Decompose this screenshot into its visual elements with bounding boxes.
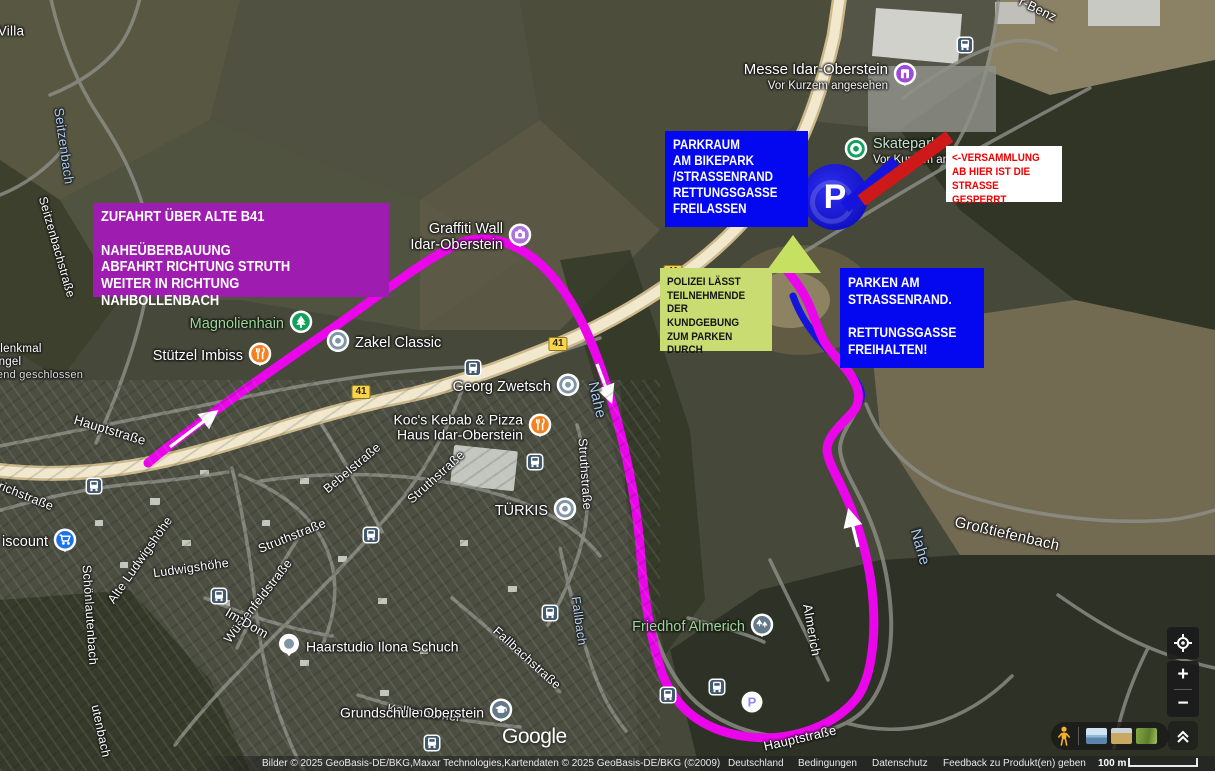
poi-icon-cemetery[interactable]: [749, 612, 776, 640]
transit-stop-icon[interactable]: [465, 360, 482, 377]
transit-stop-icon[interactable]: [542, 605, 559, 622]
poi-icon-donut[interactable]: [325, 328, 352, 356]
pegman-icon[interactable]: [1057, 726, 1071, 746]
poi-label[interactable]: Koc's Kebab & Pizza Haus Idar-Oberstein: [393, 413, 523, 444]
poi-icon-food[interactable]: [247, 341, 274, 369]
poi-icon-building[interactable]: [892, 61, 919, 89]
my-location-icon: [1173, 633, 1193, 653]
poi-icon-tree[interactable]: [288, 309, 315, 337]
assembly-closure-text: <-VERSAMMLUNG AB HIER IST DIE STRASSE GE…: [952, 151, 1046, 207]
route-info-text: ZUFAHRT ÜBER ALTE B41 NAHEÜBERBAUUNG ABF…: [101, 209, 342, 310]
chevron-up-icon: [1174, 727, 1192, 745]
poi-label[interactable]: Messe Idar-ObersteinVor Kurzem angesehen: [744, 62, 888, 92]
poi-sublabel: Vor Kurzem angesehen: [744, 79, 888, 92]
police-info-text: POLIZEI LÄSST TEILNEHMENDE DER KUNDGEBUN…: [667, 276, 755, 358]
roadside-parking-text: PARKEN AM STRASSENRAND. RETTUNGSGASSE FR…: [848, 274, 958, 358]
poi-icon-cart[interactable]: [52, 527, 79, 555]
my-location-button[interactable]: [1167, 627, 1199, 659]
layer-thumbnail-field[interactable]: [1111, 728, 1132, 744]
transit-stop-icon[interactable]: [424, 735, 441, 752]
poi-icon-camera[interactable]: [507, 222, 534, 250]
poi-label[interactable]: Friedhof Almerich: [632, 620, 745, 636]
collapse-chevrons-button[interactable]: [1168, 721, 1198, 750]
bikepark-parking-text: PARKRAUM AM BIKEPARK /STRASSENRAND RETTU…: [673, 137, 782, 217]
route-info-box[interactable]: ZUFAHRT ÜBER ALTE B41 NAHEÜBERBAUUNG ABF…: [93, 203, 389, 297]
zoom-in-button[interactable]: +: [1167, 661, 1199, 689]
scale-bar: [1128, 758, 1198, 767]
route-shield: 41: [548, 337, 567, 351]
assembly-closure-box[interactable]: <-VERSAMMLUNG AB HIER IST DIE STRASSE GE…: [946, 146, 1062, 202]
poi-icon-donut[interactable]: [555, 372, 582, 400]
roadside-parking-box[interactable]: PARKEN AM STRASSENRAND. RETTUNGSGASSE FR…: [840, 268, 984, 368]
divider: [1078, 727, 1079, 745]
link-privacy[interactable]: Datenschutz: [872, 758, 928, 769]
transit-stop-icon[interactable]: [957, 37, 974, 54]
transit-stop-icon[interactable]: [660, 687, 677, 704]
poi-icon-dotrev[interactable]: [276, 631, 303, 659]
poi-label[interactable]: Georg Zwetsch: [453, 380, 551, 396]
bikepark-parking-box[interactable]: PARKRAUM AM BIKEPARK /STRASSENRAND RETTU…: [665, 131, 808, 227]
map-attribution: Bilder © 2025 GeoBasis-DE/BKG,Maxar Tech…: [262, 758, 720, 769]
transit-stop-icon[interactable]: [86, 478, 103, 495]
transit-stop-icon[interactable]: [211, 588, 228, 605]
police-info-box[interactable]: POLIZEI LÄSST TEILNEHMENDE DER KUNDGEBUN…: [660, 268, 772, 351]
poi-label[interactable]: Grundschule Oberstein: [340, 705, 484, 720]
poi-label[interactable]: Stützel Imbiss: [153, 349, 243, 365]
zoom-control: + −: [1167, 661, 1199, 717]
route-shield: 41: [351, 385, 370, 399]
poi-label[interactable]: iscount: [2, 535, 48, 551]
link-terms[interactable]: Bedingungen: [798, 758, 857, 769]
link-country[interactable]: Deutschland: [728, 758, 784, 769]
attribution-bar: Bilder © 2025 GeoBasis-DE/BKG,Maxar Tech…: [0, 756, 1215, 771]
layer-thumbnail-sea[interactable]: [1086, 728, 1107, 744]
poi-label[interactable]: Graffiti Wall Idar-Oberstein: [410, 222, 503, 254]
transit-stop-icon[interactable]: [709, 679, 726, 696]
link-feedback[interactable]: Feedback zu Produkt(en) geben: [943, 758, 1086, 769]
poi-label[interactable]: Zakel Classic: [355, 336, 441, 352]
scale-label: 100 m: [1098, 758, 1126, 769]
poi-layer: Messe Idar-ObersteinVor Kurzem angesehen…: [0, 0, 1215, 771]
poi-label[interactable]: Magnolienhain: [190, 317, 284, 333]
poi-icon-donut[interactable]: [843, 136, 870, 164]
zoom-out-button[interactable]: −: [1167, 690, 1199, 718]
poi-icon-school[interactable]: [488, 697, 515, 725]
poi-label[interactable]: TÜRKIS: [495, 504, 548, 520]
poi-icon-donut[interactable]: [552, 496, 579, 524]
streetview-layer-bar: [1051, 722, 1169, 750]
google-logo[interactable]: Google: [502, 725, 567, 749]
poi-icon-food[interactable]: [527, 412, 554, 440]
map-canvas[interactable]: Villalenkmalngelend geschlossenSeitzenba…: [0, 0, 1215, 771]
parking-icon[interactable]: P: [742, 692, 763, 713]
layer-thumbnail-grass[interactable]: [1136, 728, 1157, 744]
poi-label[interactable]: Haarstudio Ilona Schuch: [306, 639, 459, 654]
transit-stop-icon[interactable]: [527, 454, 544, 471]
transit-stop-icon[interactable]: [363, 527, 380, 544]
